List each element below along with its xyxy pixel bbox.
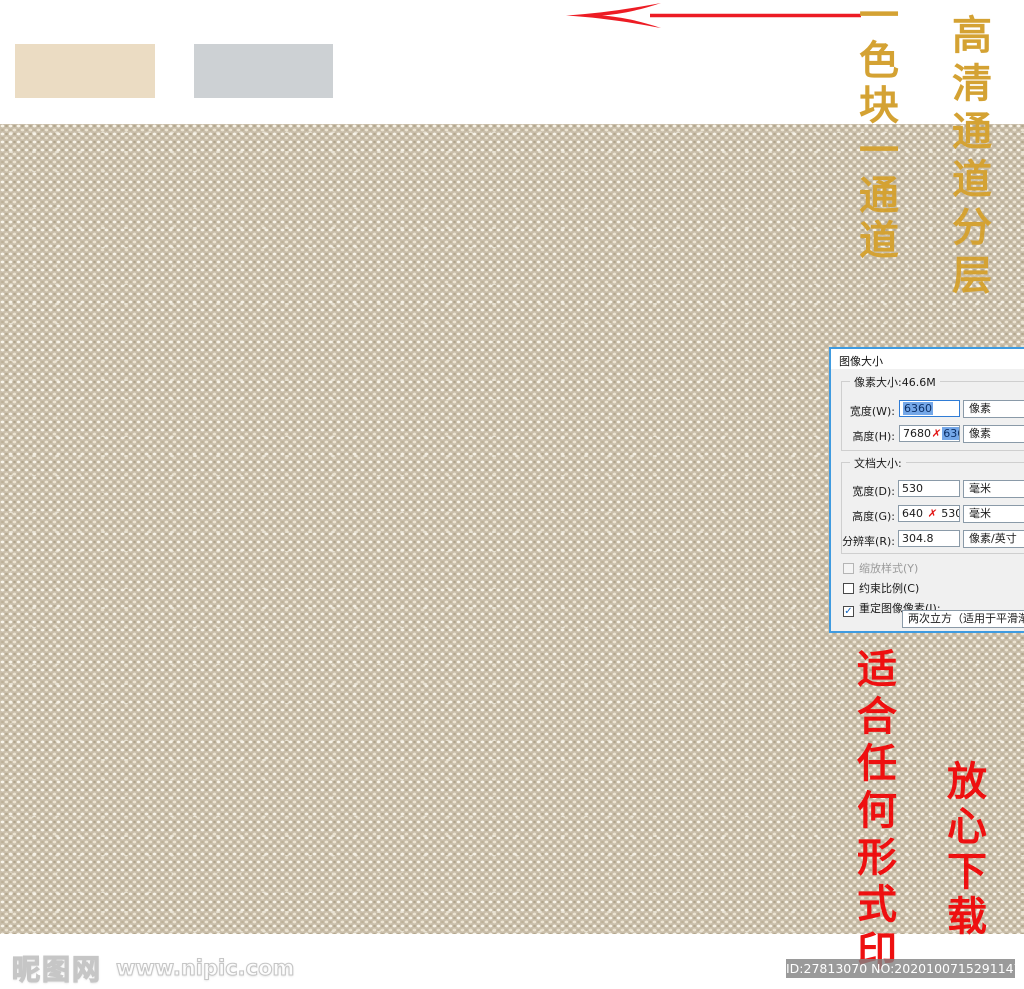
nipic-logo: 昵图网 <box>12 948 102 988</box>
annotation-gold-right: 高清通道分层 <box>948 14 988 302</box>
pixel-height-input[interactable]: 7680✗6360 <box>899 425 960 442</box>
pixel-width-input[interactable]: 6360 <box>899 400 960 417</box>
doc-width-label: 宽度(D): <box>833 483 895 499</box>
dialog-title: 图像大小 <box>839 353 883 369</box>
pixel-size-legend: 像素大小:46.6M <box>850 374 940 390</box>
doc-height-label: 高度(G): <box>833 508 895 524</box>
scale-styles-row[interactable]: 缩放样式(Y) <box>843 560 918 574</box>
resolution-label: 分辨率(R): <box>833 533 895 549</box>
resample-image-checkbox[interactable]: ✓ <box>843 606 854 617</box>
image-id-badge: ID:27813070 NO:20201007152911478088 <box>786 959 1015 978</box>
page: 高清通道分层 一色块一通道 适合任何形式印 放心下载 图像大小 像素大小:46.… <box>0 0 1024 989</box>
constrain-proportions-row[interactable]: 约束比例(C) <box>843 580 919 594</box>
annotation-red-left: 适合任何形式印 <box>853 648 893 977</box>
resolution-input[interactable]: 304.8 <box>898 530 960 547</box>
resample-method-select[interactable]: 两次立方（适用于平滑渐变 <box>902 610 1024 628</box>
doc-height-unit-select[interactable]: 毫米 <box>963 505 1024 523</box>
left-arrow-icon <box>564 2 864 30</box>
scale-styles-checkbox[interactable] <box>843 563 854 574</box>
pixel-height-unit-select[interactable]: 像素 <box>963 425 1024 443</box>
constrain-proportions-label: 约束比例(C) <box>859 582 919 595</box>
dialog-titlebar[interactable]: 图像大小 <box>831 349 1024 369</box>
resolution-unit-select[interactable]: 像素/英寸 <box>963 530 1024 548</box>
annotation-red-right: 放心下载 <box>943 760 983 940</box>
nipic-url: www.nipic.com <box>116 956 294 980</box>
pixel-width-unit-select[interactable]: 像素 <box>963 400 1024 418</box>
doc-width-input[interactable]: 530 <box>898 480 960 497</box>
strike-cross-icon: ✗ <box>931 425 942 441</box>
beige-swatch <box>15 44 155 98</box>
image-size-dialog: 图像大小 像素大小:46.6M 宽度(W): 6360 像素 高度(H): 76… <box>829 347 1024 633</box>
constrain-proportions-checkbox[interactable] <box>843 583 854 594</box>
doc-height-input[interactable]: 640 ✗ 530 <box>898 505 960 522</box>
pixel-width-label: 宽度(W): <box>833 403 895 419</box>
document-size-legend: 文档大小: <box>850 455 906 471</box>
gray-swatch <box>194 44 333 98</box>
annotation-gold-left: 一色块一通道 <box>855 0 895 264</box>
doc-width-unit-select[interactable]: 毫米 <box>963 480 1024 498</box>
scale-styles-label: 缩放样式(Y) <box>859 562 918 575</box>
strike-cross-icon: ✗ <box>927 505 938 521</box>
pixel-height-label: 高度(H): <box>833 428 895 444</box>
